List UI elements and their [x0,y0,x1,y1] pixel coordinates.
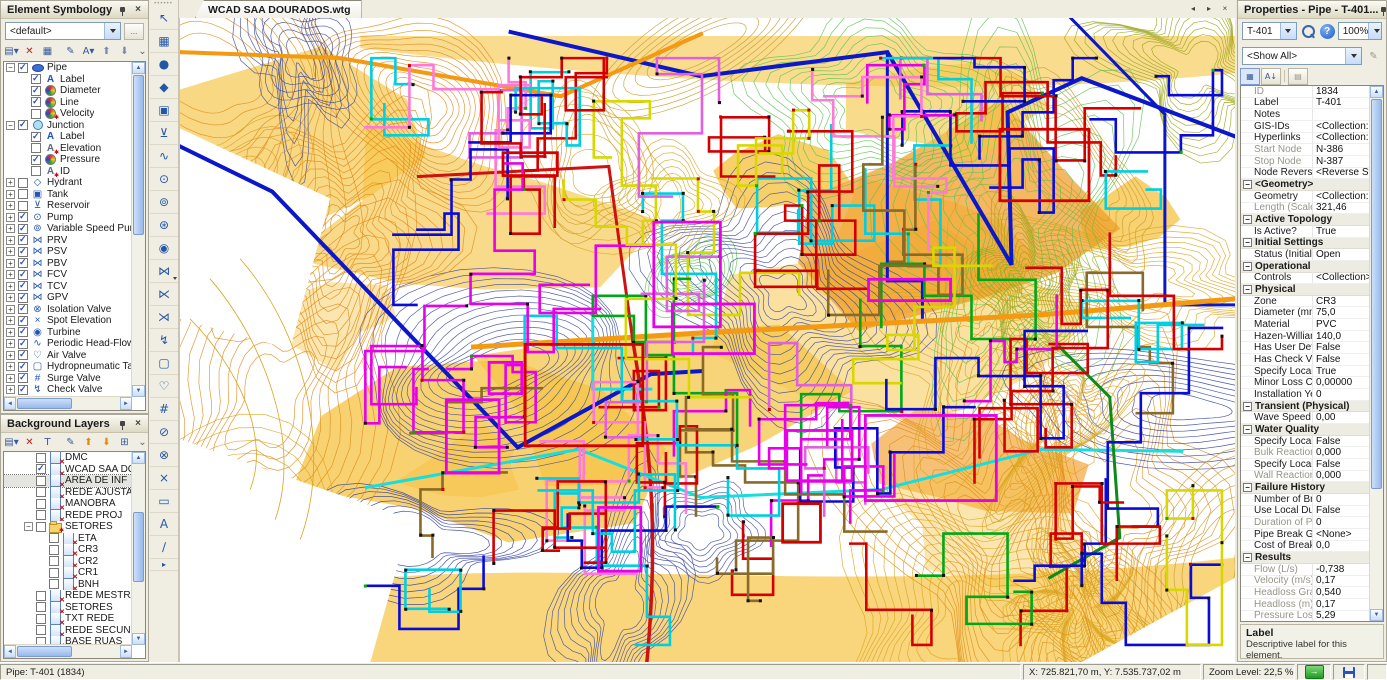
scroll-down-icon[interactable]: ▼ [1370,609,1383,621]
property-label: Wave Speed (m [1241,412,1313,423]
move-down-button[interactable]: ⬇ [116,44,133,59]
expand-toggle[interactable]: + [6,385,15,394]
visibility-checkbox[interactable] [18,178,28,188]
element-select-dropdown[interactable]: T-401 [1242,22,1297,40]
tree-item[interactable]: +⋈TCV [4,281,132,293]
property-row[interactable]: Wall Reaction F0,000 [1241,471,1370,483]
property-value[interactable]: 0,540 [1313,587,1370,598]
tree-item[interactable]: Velocity [4,108,132,120]
tree-item[interactable]: REDE PROJ [4,510,132,522]
tree-item[interactable]: CR1 [4,567,132,579]
tree-item[interactable]: −Pipe [4,62,132,74]
visibility-checkbox[interactable] [18,327,28,337]
tree-item[interactable]: Label [4,74,132,86]
expand-toggle[interactable]: + [6,328,15,337]
visibility-checkbox[interactable] [18,304,28,314]
visibility-checkbox[interactable] [31,74,41,84]
tree-item[interactable]: +×Spot Elevation [4,315,132,327]
text-tool[interactable]: A [150,513,178,536]
symbology-more-button[interactable]: ... [124,23,144,40]
turbine-tool[interactable]: ◉ [150,237,178,260]
edit-button[interactable]: ✎ [62,435,79,450]
tree-item[interactable]: CR3 [4,544,132,556]
hydrant-tool[interactable]: ◆ [150,76,178,99]
visibility-checkbox[interactable] [36,499,46,509]
property-value[interactable]: 140,0 [1313,331,1370,342]
visibility-checkbox[interactable] [36,487,46,497]
scroll-down-icon[interactable]: ▼ [132,633,145,645]
tree-item[interactable]: +♡Air Valve [4,350,132,362]
property-value[interactable]: <Collection: 0 item [1313,121,1370,132]
tree-item[interactable]: AREA DE INF [4,475,132,487]
close-icon[interactable]: × [131,3,145,16]
tab-close-icon[interactable]: × [1218,2,1232,15]
property-value[interactable]: 75,0 [1313,307,1370,318]
visibility-checkbox[interactable] [36,591,46,601]
symbology-horizontal-scrollbar[interactable]: ◄ ► [4,396,132,410]
property-value[interactable]: 0,00000 [1313,377,1370,388]
tab-scroll-left-icon[interactable]: ◂ [1186,2,1200,15]
property-value[interactable]: False [1313,505,1370,516]
pbv-tool[interactable]: ⋊ [150,306,178,329]
properties-zoom-dropdown[interactable]: 100% [1338,22,1382,40]
property-value[interactable]: <None> [1313,529,1370,540]
property-category[interactable]: −Water Quality [1241,424,1370,436]
visibility-checkbox[interactable] [18,189,28,199]
collapse-toggle[interactable]: − [1243,425,1252,434]
property-value[interactable]: True [1313,366,1370,377]
property-row[interactable]: Specify Local BFalse [1241,436,1370,448]
network-map-canvas[interactable] [180,18,1235,662]
property-label: Status (Initial) [1241,249,1313,260]
visibility-checkbox[interactable] [36,625,46,635]
property-value[interactable]: 0,17 [1313,575,1370,586]
tree-item[interactable]: +#Surge Valve [4,373,132,385]
visibility-checkbox[interactable] [18,316,28,326]
property-row[interactable]: Hazen-Williams140,0 [1241,331,1370,343]
property-value[interactable]: 0,000 [1313,447,1370,458]
property-row[interactable]: Installation Yea0 [1241,389,1370,401]
tree-item-label: FCV [47,269,67,280]
tree-item[interactable]: CR2 [4,556,132,568]
tree-item[interactable]: +⋈PSV [4,246,132,258]
tree-item[interactable]: +◉Turbine [4,327,132,339]
visibility-checkbox[interactable] [18,120,28,130]
collapse-toggle[interactable]: − [1243,553,1252,562]
marquee-select-tool[interactable]: ▦ [150,30,178,53]
property-row[interactable]: MaterialPVC [1241,319,1370,331]
visibility-checkbox[interactable] [18,339,28,349]
tree-item[interactable]: +⋈FCV [4,269,132,281]
tree-item[interactable]: +⊙Pump [4,212,132,224]
close-icon[interactable]: × [131,417,145,430]
new-folder-button[interactable]: ⊞ [116,435,133,450]
property-row[interactable]: Pressure Loss5,29 [1241,611,1370,621]
expand-toggle[interactable]: + [6,339,15,348]
collapse-toggle[interactable]: − [1243,483,1252,492]
delete-button[interactable]: ✕ [21,435,38,450]
tree-item[interactable]: ID [4,166,132,178]
property-row[interactable]: Start NodeN-386 [1241,144,1370,156]
visibility-checkbox[interactable] [18,281,28,291]
property-row[interactable]: Velocity (m/s)0,17 [1241,576,1370,588]
property-value[interactable]: 0 [1313,389,1370,400]
property-row[interactable]: Stop NodeN-387 [1241,156,1370,168]
border-tool[interactable]: ▭ [150,490,178,513]
property-value[interactable]: 0 [1313,494,1370,505]
property-row[interactable]: Length (Scaled)321,46 [1241,203,1370,215]
property-category[interactable]: −Operational [1241,261,1370,273]
tree-item[interactable]: +▣Tank [4,189,132,201]
property-row[interactable]: Duration of Pipe0 [1241,517,1370,529]
scroll-up-icon[interactable]: ▲ [1370,86,1383,98]
tree-item[interactable]: TXT REDE [4,613,132,625]
visibility-checkbox[interactable] [36,614,46,624]
expand-toggle[interactable]: + [6,178,15,187]
property-category[interactable]: −Failure History [1241,482,1370,494]
property-value[interactable]: -0,738 [1313,564,1370,575]
layers-vertical-scrollbar[interactable]: ▲ ▼ [131,452,145,645]
edit-filter-button[interactable]: ✎ [1365,49,1382,64]
expand-toggle[interactable]: + [6,362,15,371]
property-row[interactable]: Bulk Reaction F0,000 [1241,447,1370,459]
visibility-checkbox[interactable] [49,545,59,555]
tree-item[interactable]: +◇Hydrant [4,177,132,189]
hydropneumatic-tank-tool[interactable]: ▢ [150,352,178,375]
property-row[interactable]: GIS-IDs<Collection: 0 item [1241,121,1370,133]
tree-item[interactable]: Elevation [4,143,132,155]
property-row[interactable]: Has User DefinFalse [1241,342,1370,354]
tree-item-label: Line [60,97,79,108]
visibility-checkbox[interactable] [31,166,41,176]
visibility-checkbox[interactable] [31,97,41,107]
property-value[interactable]: True [1313,226,1370,237]
tree-item[interactable]: Pressure [4,154,132,166]
icon-shape [50,602,61,614]
select-tool[interactable]: ↖ [150,7,178,30]
property-value[interactable]: False [1313,459,1370,470]
expand-toggle[interactable]: − [6,63,15,72]
visibility-checkbox[interactable] [18,201,28,211]
visibility-checkbox[interactable] [49,556,59,566]
tree-item[interactable]: REDE AJUSTADA [4,487,132,499]
visibility-checkbox[interactable] [18,373,28,383]
property-row[interactable]: Diameter (mm)75,0 [1241,307,1370,319]
text-icon: A [160,517,168,531]
categorized-view-button[interactable]: ▦ [1240,68,1260,85]
tree-item[interactable]: +⋈PBV [4,258,132,270]
help-icon[interactable]: ? [1320,24,1335,39]
property-row[interactable]: Controls<Collection> [1241,273,1370,285]
property-value[interactable]: 0,17 [1313,599,1370,610]
property-value[interactable]: <Collection: 0 item [1313,132,1370,143]
tree-item[interactable]: ETA [4,533,132,545]
sort-alphabetical-button[interactable]: A↓ [1261,68,1281,85]
chevron-down-icon[interactable] [1368,23,1382,39]
pin-icon[interactable] [1379,3,1387,16]
scroll-up-icon[interactable]: ▲ [132,452,145,464]
tree-item[interactable]: WCAD SAA DOURADO [4,464,132,476]
expand-toggle[interactable]: + [6,259,15,268]
icon-shape [45,97,56,108]
visibility-checkbox[interactable] [31,155,41,165]
toolbar-grip[interactable]: •••••• [149,0,178,7]
pin-icon[interactable] [117,417,131,430]
visibility-checkbox[interactable] [18,293,28,303]
property-row[interactable]: Cost of Break (f0,0 [1241,541,1370,553]
spot-elevation-icon: × [159,471,169,485]
tree-item[interactable]: +⋈GPV [4,292,132,304]
visibility-checkbox[interactable] [49,533,59,543]
property-category[interactable]: −<Geometry> [1241,179,1370,191]
collapse-toggle[interactable]: − [1243,262,1252,271]
move-down-button[interactable]: ⬇ [98,435,115,450]
tree-item[interactable]: Diameter [4,85,132,97]
expand-toggle[interactable]: + [6,316,15,325]
property-value[interactable]: T-401 [1313,97,1370,108]
spot-elevation-tool[interactable]: × [150,467,178,490]
scroll-down-icon[interactable]: ▼ [132,385,145,397]
property-value[interactable]: 0 [1313,517,1370,528]
scroll-left-icon[interactable]: ◄ [4,645,16,658]
tree-item[interactable]: +⊚Variable Speed Pump Batte [4,223,132,235]
tree-item[interactable]: +⋈PRV [4,235,132,247]
property-value[interactable]: N-386 [1313,144,1370,155]
expand-toggle[interactable]: + [6,213,15,222]
new-dropdown-button[interactable]: ▤▾ [3,44,20,59]
tree-item[interactable]: +↯Check Valve [4,384,132,396]
scroll-right-icon[interactable]: ► [120,645,132,658]
property-value[interactable]: <Reverse Start/St [1313,167,1370,178]
chevron-down-icon[interactable] [1345,48,1361,64]
expand-toggle[interactable]: + [6,247,15,256]
property-value[interactable]: 1834 [1313,86,1370,97]
visibility-checkbox[interactable] [31,143,41,153]
collapse-toggle[interactable]: − [1243,238,1252,247]
tree-item[interactable]: +▢Hydropneumatic Tank [4,361,132,373]
property-category[interactable]: −Results [1241,552,1370,564]
chevron-down-icon[interactable] [104,23,120,39]
property-row[interactable]: Use Local DuraFalse [1241,506,1370,518]
collapse-toggle[interactable]: − [1243,180,1252,189]
visibility-checkbox[interactable] [18,350,28,360]
rename-button[interactable]: ▦ [39,44,56,59]
chevron-down-icon[interactable] [1280,23,1296,39]
visibility-checkbox[interactable] [18,212,28,222]
edit-button[interactable]: ✎ [62,44,79,59]
status-bar: Pipe: T-401 (1834) X: 725.821,70 m, Y: 7… [0,662,1387,680]
air-valve-tool[interactable]: ♡ [150,375,178,398]
property-value[interactable]: False [1313,436,1370,447]
expand-toggle[interactable]: + [6,236,15,245]
property-value[interactable]: False [1313,342,1370,353]
psv-tool[interactable]: ⋉ [150,283,178,306]
tab-wcad-saa-dourados[interactable]: WCAD SAA DOURADOS.wtg [195,0,362,18]
move-up-button[interactable]: ⬆ [98,44,115,59]
expand-toggle[interactable]: + [6,201,15,210]
property-row[interactable]: Headloss (m)0,17 [1241,599,1370,611]
visibility-checkbox[interactable] [36,522,46,532]
tree-item[interactable]: +∿Periodic Head-Flow [4,338,132,350]
tree-item[interactable]: Label [4,131,132,143]
property-row[interactable]: Hyperlinks<Collection: 0 item [1241,133,1370,145]
property-value[interactable]: N-387 [1313,156,1370,167]
property-row[interactable]: Number of Brea0 [1241,494,1370,506]
property-row[interactable]: Notes [1241,109,1370,121]
visibility-checkbox[interactable] [18,258,28,268]
expand-toggle[interactable]: − [6,121,15,130]
visibility-checkbox[interactable] [18,63,28,73]
scroll-right-icon[interactable]: ► [120,397,132,410]
expand-toggle[interactable]: + [6,190,15,199]
line-tool[interactable]: ∕ [150,536,178,559]
visibility-checkbox[interactable] [18,247,28,257]
visibility-checkbox[interactable] [18,270,28,280]
tab-scroll-right-icon[interactable]: ▸ [1202,2,1216,15]
tree-item[interactable]: +⊻Reservoir [4,200,132,212]
expand-toggle[interactable]: − [24,522,33,531]
visibility-checkbox[interactable] [31,109,41,119]
property-row[interactable]: Status (Initial)Open [1241,249,1370,261]
expand-toggle[interactable]: + [6,282,15,291]
property-value[interactable]: 5,29 [1313,610,1370,621]
customize-button[interactable]: ▤ [1288,68,1308,85]
move-up-button[interactable]: ⬆ [80,435,97,450]
periodic-head-flow-tool[interactable]: ∿ [150,145,178,168]
tool-scroll-button[interactable]: ▸ [150,559,178,571]
tree-item[interactable]: +⊗Isolation Valve [4,304,132,316]
property-label: Geometry [1241,191,1313,202]
visibility-checkbox[interactable] [18,362,28,372]
expand-toggle[interactable]: + [6,374,15,383]
property-category[interactable]: −Transient (Physical) [1241,401,1370,413]
symbology-preset-dropdown[interactable]: <default> [5,22,121,40]
junction-tool[interactable]: ● [150,53,178,76]
property-value[interactable]: Open [1313,249,1370,260]
text-button[interactable]: T [39,435,56,450]
property-value[interactable]: <Collection: 4 item [1313,191,1370,202]
tree-item[interactable]: SETORES [4,602,132,614]
property-value[interactable]: 321,46 [1313,202,1370,213]
visibility-checkbox[interactable] [36,464,46,474]
property-value[interactable]: 0,000 [1313,470,1370,481]
tree-item[interactable]: −SETORES [4,521,132,533]
collapse-toggle[interactable]: − [1243,285,1252,294]
property-row[interactable]: Minor Loss Coe0,00000 [1241,377,1370,389]
pump-tool[interactable]: ⊙ [150,168,178,191]
property-row[interactable]: Node Reversal<Reverse Start/St [1241,168,1370,180]
collapse-toggle[interactable]: − [1243,215,1252,224]
property-row[interactable]: Flow (L/s)-0,738 [1241,564,1370,576]
collapse-toggle[interactable]: − [1243,402,1252,411]
tree-item[interactable]: −Junction [4,120,132,132]
layers-horizontal-scrollbar[interactable]: ◄ ► [4,644,132,658]
property-value[interactable]: <Collection> [1313,272,1370,283]
visibility-checkbox[interactable] [31,86,41,96]
property-category[interactable]: −Initial Settings [1241,238,1370,250]
visibility-checkbox[interactable] [36,476,46,486]
surge-valve-tool[interactable]: # [150,398,178,421]
visibility-checkbox[interactable] [18,235,28,245]
property-value[interactable]: 0,0 [1313,540,1370,551]
expand-toggle[interactable]: + [6,305,15,314]
save-icon [1343,667,1355,678]
compute-button[interactable]: → [1297,664,1331,680]
property-category[interactable]: −Physical [1241,284,1370,296]
pump-battery-tool[interactable]: ⊛ [150,214,178,237]
zoom-to-element-button[interactable] [1300,24,1317,39]
tree-item[interactable]: Line [4,97,132,109]
symbology-vertical-scrollbar[interactable]: ▲ ▼ [131,62,145,397]
tank-tool[interactable]: ▣ [150,99,178,122]
properties-filter-dropdown[interactable]: <Show All> [1242,47,1362,65]
tree-item[interactable]: MANOBRA [4,498,132,510]
tree-item[interactable]: DMC [4,452,132,464]
property-row[interactable]: Pipe Break Gro<None> [1241,529,1370,541]
tree-item[interactable]: REDE SECUNDARIA [4,625,132,637]
property-value[interactable]: 0,00 [1313,412,1370,423]
tree-item[interactable]: BNH [4,579,132,591]
property-row[interactable]: ID1834 [1241,86,1370,98]
visibility-checkbox[interactable] [49,568,59,578]
new-dropdown-button[interactable]: ▤▾ [3,435,20,450]
delete-button[interactable]: ✕ [21,44,38,59]
property-category[interactable]: −Active Topology [1241,214,1370,226]
property-value[interactable]: False [1313,354,1370,365]
rupture-disk-tool[interactable]: ⊘ [150,421,178,444]
check-valve-tool[interactable]: ↯ [150,329,178,352]
property-row[interactable]: Is Active?True [1241,226,1370,238]
property-row[interactable]: Specify Local WFalse [1241,459,1370,471]
expand-toggle[interactable]: + [6,270,15,279]
property-row[interactable]: LabelT-401 [1241,98,1370,110]
property-row[interactable]: Specify Local MTrue [1241,366,1370,378]
tree-item[interactable]: REDE MESTRA [4,590,132,602]
property-label: Hazen-Williams [1241,331,1313,342]
property-value[interactable]: CR3 [1313,296,1370,307]
visibility-checkbox[interactable] [18,224,28,234]
property-row[interactable]: Wave Speed (m0,00 [1241,412,1370,424]
property-row[interactable]: Headloss Gradi0,540 [1241,587,1370,599]
property-value[interactable]: PVC [1313,319,1370,330]
network-map-viewport [179,18,1235,662]
property-row[interactable]: ZoneCR3 [1241,296,1370,308]
visibility-checkbox[interactable] [31,132,41,142]
property-row[interactable]: Has Check ValvFalse [1241,354,1370,366]
property-row[interactable]: Geometry<Collection: 4 item [1241,191,1370,203]
save-button[interactable] [1333,664,1365,680]
pin-icon[interactable] [117,3,131,16]
variable-speed-pump-tool[interactable]: ⊚ [150,191,178,214]
font-button[interactable]: A▾ [80,44,97,59]
reservoir-tool[interactable]: ⊻ [150,122,178,145]
expand-toggle[interactable]: + [6,224,15,233]
icon-shape [63,544,74,556]
visibility-checkbox[interactable] [36,602,46,612]
visibility-checkbox[interactable] [18,385,28,395]
expand-toggle[interactable]: + [6,351,15,360]
isolation-valve-tool[interactable]: ⊗ [150,444,178,467]
icon-shape [63,579,74,591]
visibility-checkbox[interactable] [36,453,46,463]
scroll-up-icon[interactable]: ▲ [132,62,145,74]
valve-tool[interactable]: ⋈ [150,260,178,283]
visibility-checkbox[interactable] [49,579,59,589]
properties-vertical-scrollbar[interactable]: ▲ ▼ [1369,86,1383,621]
scroll-left-icon[interactable]: ◄ [4,397,16,410]
expand-toggle[interactable]: + [6,293,15,302]
visibility-checkbox[interactable] [36,510,46,520]
